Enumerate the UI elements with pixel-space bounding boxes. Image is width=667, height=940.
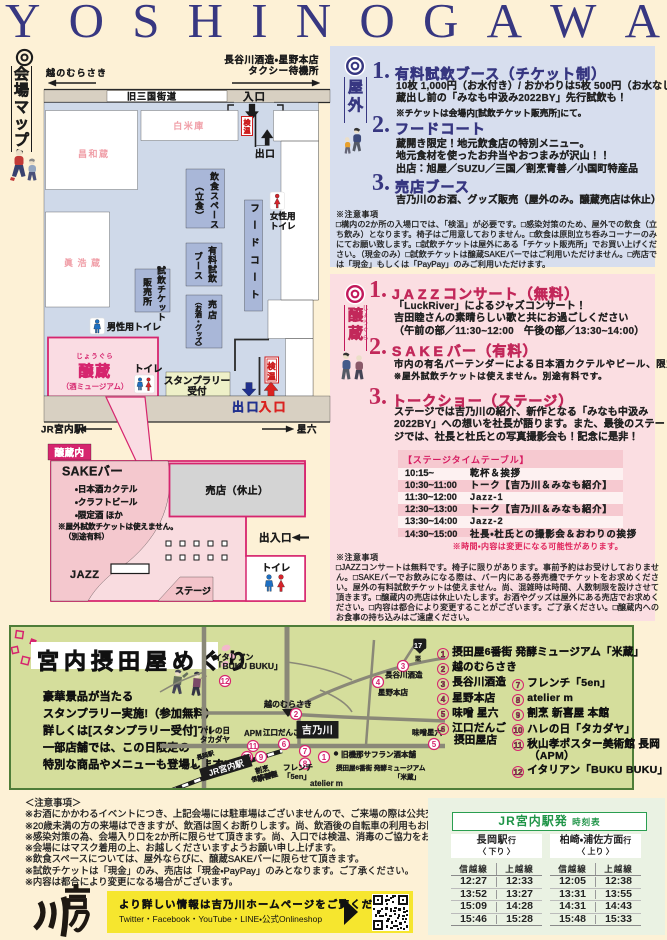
svg-text:昌和蔵: 昌和蔵 (78, 148, 110, 159)
svg-text:販売所: 販売所 (142, 278, 152, 307)
svg-text:atelier m: atelier m (310, 779, 343, 788)
svg-text:11: 11 (249, 742, 258, 751)
svg-text:旧機那サフラン酒本舗: 旧機那サフラン酒本舗 (341, 749, 416, 759)
svg-text:4: 4 (376, 678, 381, 687)
svg-text:12: 12 (221, 677, 230, 686)
svg-text:試飲チケット: 試飲チケット (156, 265, 166, 322)
svg-text:長谷川酒造・星野本店: 長谷川酒造・星野本店 (224, 54, 319, 66)
svg-text:越のむらさき: 越のむらさき (263, 699, 312, 709)
svg-text:温: 温 (244, 126, 251, 135)
svg-text:フレンチ: フレンチ (283, 763, 313, 772)
svg-text:9: 9 (259, 753, 264, 762)
svg-text:7: 7 (303, 747, 308, 756)
svg-text:男性用トイレ: 男性用トイレ (107, 321, 161, 332)
svg-text:白米庫: 白米庫 (173, 120, 205, 131)
svg-text:星六: 星六 (297, 424, 317, 436)
svg-text:2: 2 (294, 710, 299, 719)
svg-text:旧三国街道: 旧三国街道 (127, 91, 177, 102)
svg-text:検: 検 (268, 361, 277, 371)
svg-text:出口: 出口 (255, 148, 276, 160)
svg-text:JR宮内駅: JR宮内駅 (41, 424, 84, 436)
svg-text:入口: 入口 (258, 400, 288, 414)
svg-text:「5en」: 「5en」 (283, 771, 311, 781)
svg-text:出口: 出口 (232, 399, 261, 414)
svg-text:醸蔵内: 醸蔵内 (54, 447, 84, 459)
svg-text:入口: 入口 (242, 91, 266, 103)
svg-text:フードコート: フードコート (248, 203, 259, 307)
svg-text:トイレ: トイレ (262, 563, 291, 574)
svg-text:眞浩蔵: 眞浩蔵 (64, 257, 105, 268)
svg-text:（別途有料）: （別途有料） (64, 531, 109, 541)
svg-text:有料試飲: 有料試飲 (207, 245, 217, 284)
svg-text:SAKEバー: SAKEバー (62, 465, 123, 479)
svg-text:飲食スペース: 飲食スペース (209, 171, 219, 230)
svg-text:・日本酒カクテル: ・日本酒カクテル (75, 484, 138, 494)
svg-text:トイレ: トイレ (134, 364, 163, 375)
svg-text:ブース: ブース (193, 251, 203, 280)
svg-text:「BUKU BUKU」: 「BUKU BUKU」 (214, 661, 282, 671)
svg-text:ハレの日: ハレの日 (200, 726, 230, 735)
svg-text:摂田屋6番街 発酵ミュージアム: 摂田屋6番街 発酵ミュージアム (336, 763, 426, 772)
svg-text:1: 1 (322, 753, 327, 762)
svg-text:江口だんご: 江口だんご (263, 727, 301, 737)
svg-text:受付: 受付 (187, 386, 207, 398)
svg-text:（立食）: （立食） (194, 182, 204, 220)
svg-text:・限定酒 ほか: ・限定酒 ほか (75, 510, 123, 520)
svg-text:じょうぐら: じょうぐら (76, 352, 114, 360)
svg-text:タカダヤ: タカダヤ (200, 734, 230, 744)
svg-text:越のむらさき: 越のむらさき (45, 67, 107, 78)
svg-text:至: 至 (415, 655, 421, 663)
svg-text:温: 温 (268, 371, 276, 381)
svg-text:・クラフトビール: ・クラフトビール (75, 497, 138, 507)
svg-text:売店: 売店 (207, 299, 217, 321)
svg-text:ステージ: ステージ (175, 586, 211, 596)
svg-text:APM: APM (244, 729, 262, 738)
svg-text:売店（休止）: 売店（休止） (206, 484, 269, 497)
svg-text:スタンプラリー: スタンプラリー (164, 375, 230, 387)
svg-text:出入口: 出入口 (259, 531, 292, 544)
svg-text:女性用: 女性用 (270, 211, 296, 221)
svg-text:長谷川酒造: 長谷川酒造 (385, 670, 423, 680)
svg-text:吉乃川: 吉乃川 (302, 724, 334, 737)
svg-text:JAZZ: JAZZ (70, 569, 100, 581)
svg-text:（酒ミュージアム）: （酒ミュージアム） (62, 381, 129, 391)
svg-text:トイレ: トイレ (270, 221, 296, 231)
svg-text:タクシー待機所: タクシー待機所 (248, 65, 319, 77)
svg-text:星野本店: 星野本店 (378, 687, 408, 697)
svg-text:「米蔵」: 「米蔵」 (394, 772, 420, 781)
svg-text:17: 17 (414, 641, 422, 650)
svg-text:検: 検 (244, 118, 252, 127)
svg-text:6: 6 (282, 740, 287, 749)
svg-text:醸蔵: 醸蔵 (78, 362, 111, 380)
svg-text:※屋外試飲チケットは使えません。: ※屋外試飲チケットは使えません。 (58, 521, 178, 531)
